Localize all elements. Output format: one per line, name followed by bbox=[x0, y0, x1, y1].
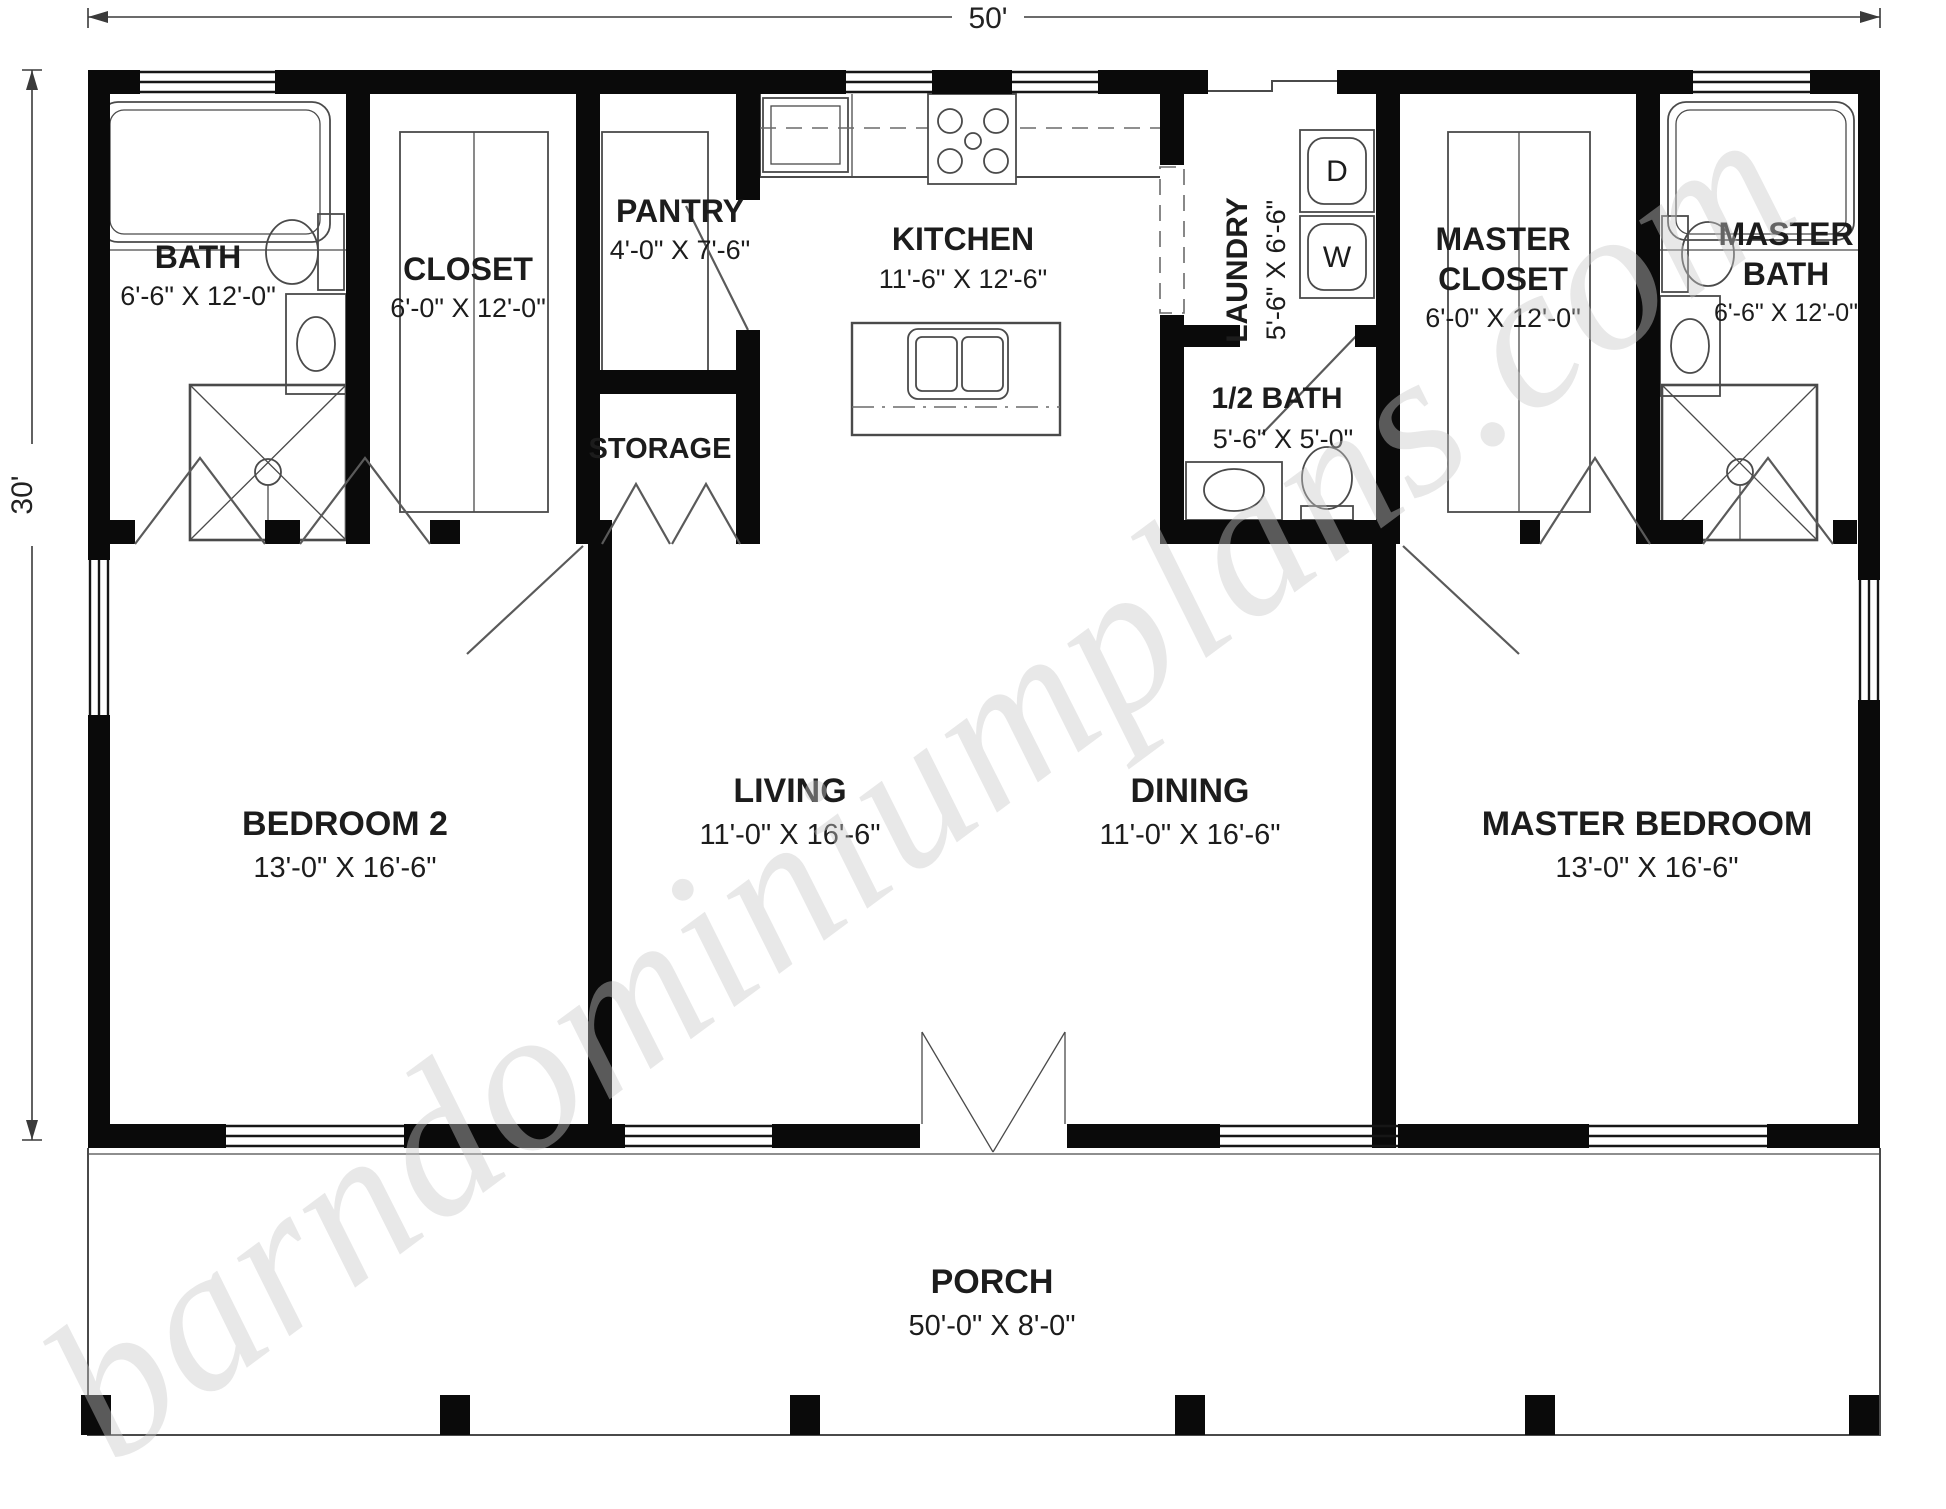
entry-french-doors bbox=[922, 1032, 1065, 1152]
window bbox=[140, 72, 275, 92]
stove-icon bbox=[928, 94, 1016, 184]
bath-dims: 6'-6" X 12'-0" bbox=[120, 281, 276, 311]
floor-plan-canvas: D W bbox=[0, 0, 1946, 1509]
floor-plan-drawing: D W bbox=[0, 0, 1946, 1509]
master-bedroom-dims: 13'-0" X 16'-6" bbox=[1555, 852, 1738, 884]
shower-icon bbox=[190, 385, 346, 540]
window bbox=[90, 560, 108, 715]
porch-posts bbox=[81, 1395, 1879, 1435]
pantry-label: PANTRY bbox=[616, 193, 744, 229]
master-bath-door bbox=[1703, 458, 1833, 544]
bedroom2-dims: 13'-0" X 16'-6" bbox=[253, 852, 436, 884]
bath-door bbox=[135, 458, 265, 544]
height-dimension-label: 30' bbox=[6, 475, 39, 514]
washer-letter: W bbox=[1323, 241, 1352, 274]
laundry-exterior-door bbox=[1208, 81, 1337, 91]
bedroom2-label: BEDROOM 2 bbox=[242, 805, 448, 843]
kitchen-island bbox=[852, 323, 1060, 435]
closet-dims: 6'-0" X 12'-0" bbox=[390, 293, 546, 323]
bath-label: BATH bbox=[155, 239, 242, 275]
sink-icon bbox=[286, 294, 346, 394]
window bbox=[1860, 580, 1878, 700]
bedroom2-door bbox=[467, 546, 583, 654]
kitchen-dims: 11'-6" X 12'-6" bbox=[879, 264, 1048, 294]
double-sink-icon bbox=[908, 329, 1008, 399]
height-dimension: 30' bbox=[6, 70, 42, 1140]
laundry-label: LAUNDRY bbox=[1221, 197, 1254, 343]
bath-fixtures bbox=[100, 102, 346, 540]
window bbox=[1220, 1126, 1398, 1146]
storage-bifold-door bbox=[602, 484, 670, 544]
toilet-icon bbox=[266, 214, 344, 290]
master-bedroom-door bbox=[1403, 546, 1519, 654]
dryer-icon: D bbox=[1300, 130, 1374, 212]
refrigerator-icon bbox=[763, 98, 848, 172]
washer-icon: W bbox=[1300, 216, 1374, 298]
laundry-dims: 5'-6" X 6'-6" bbox=[1261, 200, 1291, 341]
pantry-dims: 4'-0" X 7'-6" bbox=[610, 235, 751, 265]
window bbox=[625, 1126, 772, 1146]
window bbox=[1589, 1126, 1767, 1146]
dining-label: DINING bbox=[1131, 772, 1250, 810]
window bbox=[846, 72, 932, 92]
dryer-letter: D bbox=[1326, 155, 1348, 188]
kitchen-label: KITCHEN bbox=[892, 221, 1034, 257]
fridge-niche-dashed bbox=[1160, 167, 1184, 313]
porch-dims: 50'-0" X 8'-0" bbox=[908, 1310, 1075, 1342]
window bbox=[1012, 72, 1098, 92]
master-bedroom-label: MASTER BEDROOM bbox=[1482, 805, 1813, 843]
master-closet-door bbox=[1540, 458, 1650, 544]
closet-label: CLOSET bbox=[403, 251, 533, 287]
storage-bifold-door bbox=[672, 484, 740, 544]
shower-icon bbox=[1662, 385, 1817, 540]
porch-label: PORCH bbox=[931, 1263, 1054, 1301]
storage-label: STORAGE bbox=[589, 433, 732, 465]
width-dimension: 50' bbox=[88, 2, 1880, 35]
dining-dims: 11'-0" X 16'-6" bbox=[1099, 819, 1280, 851]
width-dimension-label: 50' bbox=[968, 2, 1007, 35]
